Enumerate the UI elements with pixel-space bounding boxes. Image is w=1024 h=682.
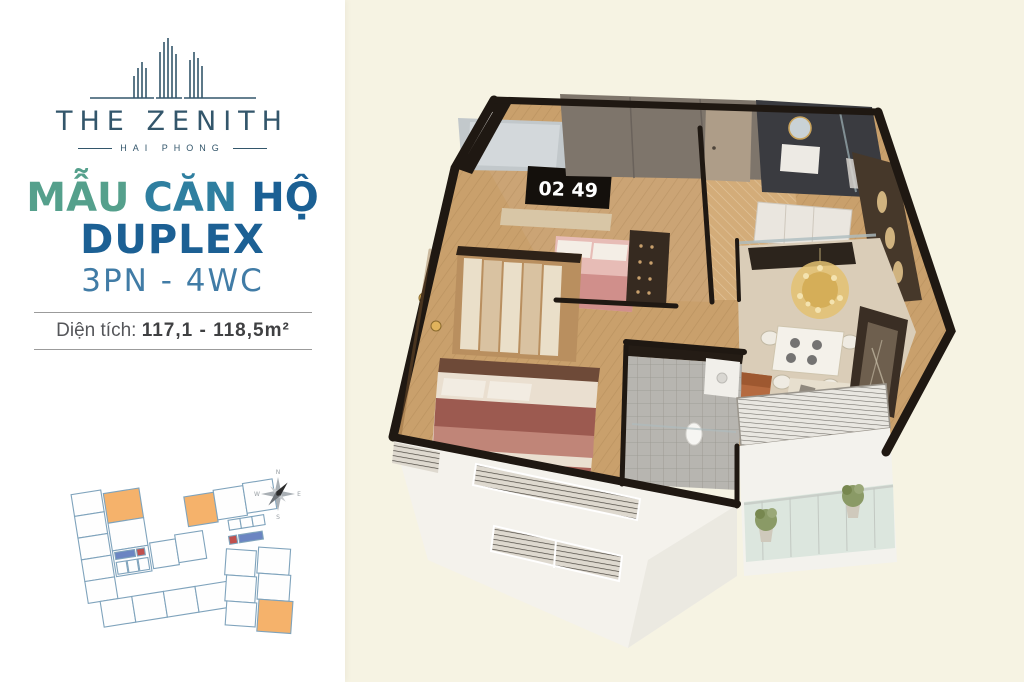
unit-headline: MẪU CĂN HỘ DUPLEX 3PN - 4WC (0, 178, 345, 297)
walk-in-closet (452, 246, 582, 362)
bathroom-main (624, 342, 744, 490)
headline-line3: 3PN - 4WC (0, 265, 345, 297)
area-strip: Diện tích: 117,1 - 118,5m² (34, 312, 312, 350)
logo-subtitle: HAI PHONG (0, 143, 345, 153)
compass-label-w: W (254, 491, 260, 498)
area-label: Diện tích: (56, 320, 136, 341)
toilet (686, 423, 702, 445)
logo-dash-right (233, 148, 267, 149)
headline-line2: DUPLEX (0, 220, 345, 262)
compass-label-n: N (276, 469, 281, 476)
info-panel: THE ZENITH HAI PHONG MẪU CĂN HỘ DUPLEX 3… (0, 0, 345, 682)
headline-word-mau: MẪU (26, 175, 129, 221)
project-logo: THE ZENITH HAI PHONG (0, 38, 345, 153)
area-value: 117,1 - 118,5m² (142, 320, 290, 341)
round-mirror (789, 117, 811, 139)
entry-door (704, 105, 752, 182)
tv-clock-text: 02 49 (538, 178, 598, 202)
site-keyplan: N E S W (58, 468, 310, 638)
compass-label-e: E (297, 491, 301, 498)
unit-highlight (184, 492, 218, 526)
logo-dash-left (78, 148, 112, 149)
unit-highlight (103, 488, 143, 523)
vanity-upper (780, 144, 820, 174)
wine-rack (626, 230, 670, 306)
brochure-page: THE ZENITH HAI PHONG MẪU CĂN HỘ DUPLEX 3… (0, 0, 1024, 682)
headline-line1: MẪU CĂN HỘ (0, 178, 345, 220)
balcony (737, 384, 897, 576)
logo-title: THE ZENITH (0, 106, 345, 137)
compass-label-s: S (276, 514, 280, 521)
unit-highlight (257, 599, 293, 633)
headline-word-ho: HỘ (251, 175, 318, 221)
skyline-logo-icon (88, 38, 258, 104)
headline-word-can: CĂN (143, 175, 237, 221)
dining-table (772, 326, 844, 376)
floorplan-3d-render: 02 49 (345, 0, 1024, 682)
logo-subtitle-text: HAI PHONG (120, 143, 225, 153)
